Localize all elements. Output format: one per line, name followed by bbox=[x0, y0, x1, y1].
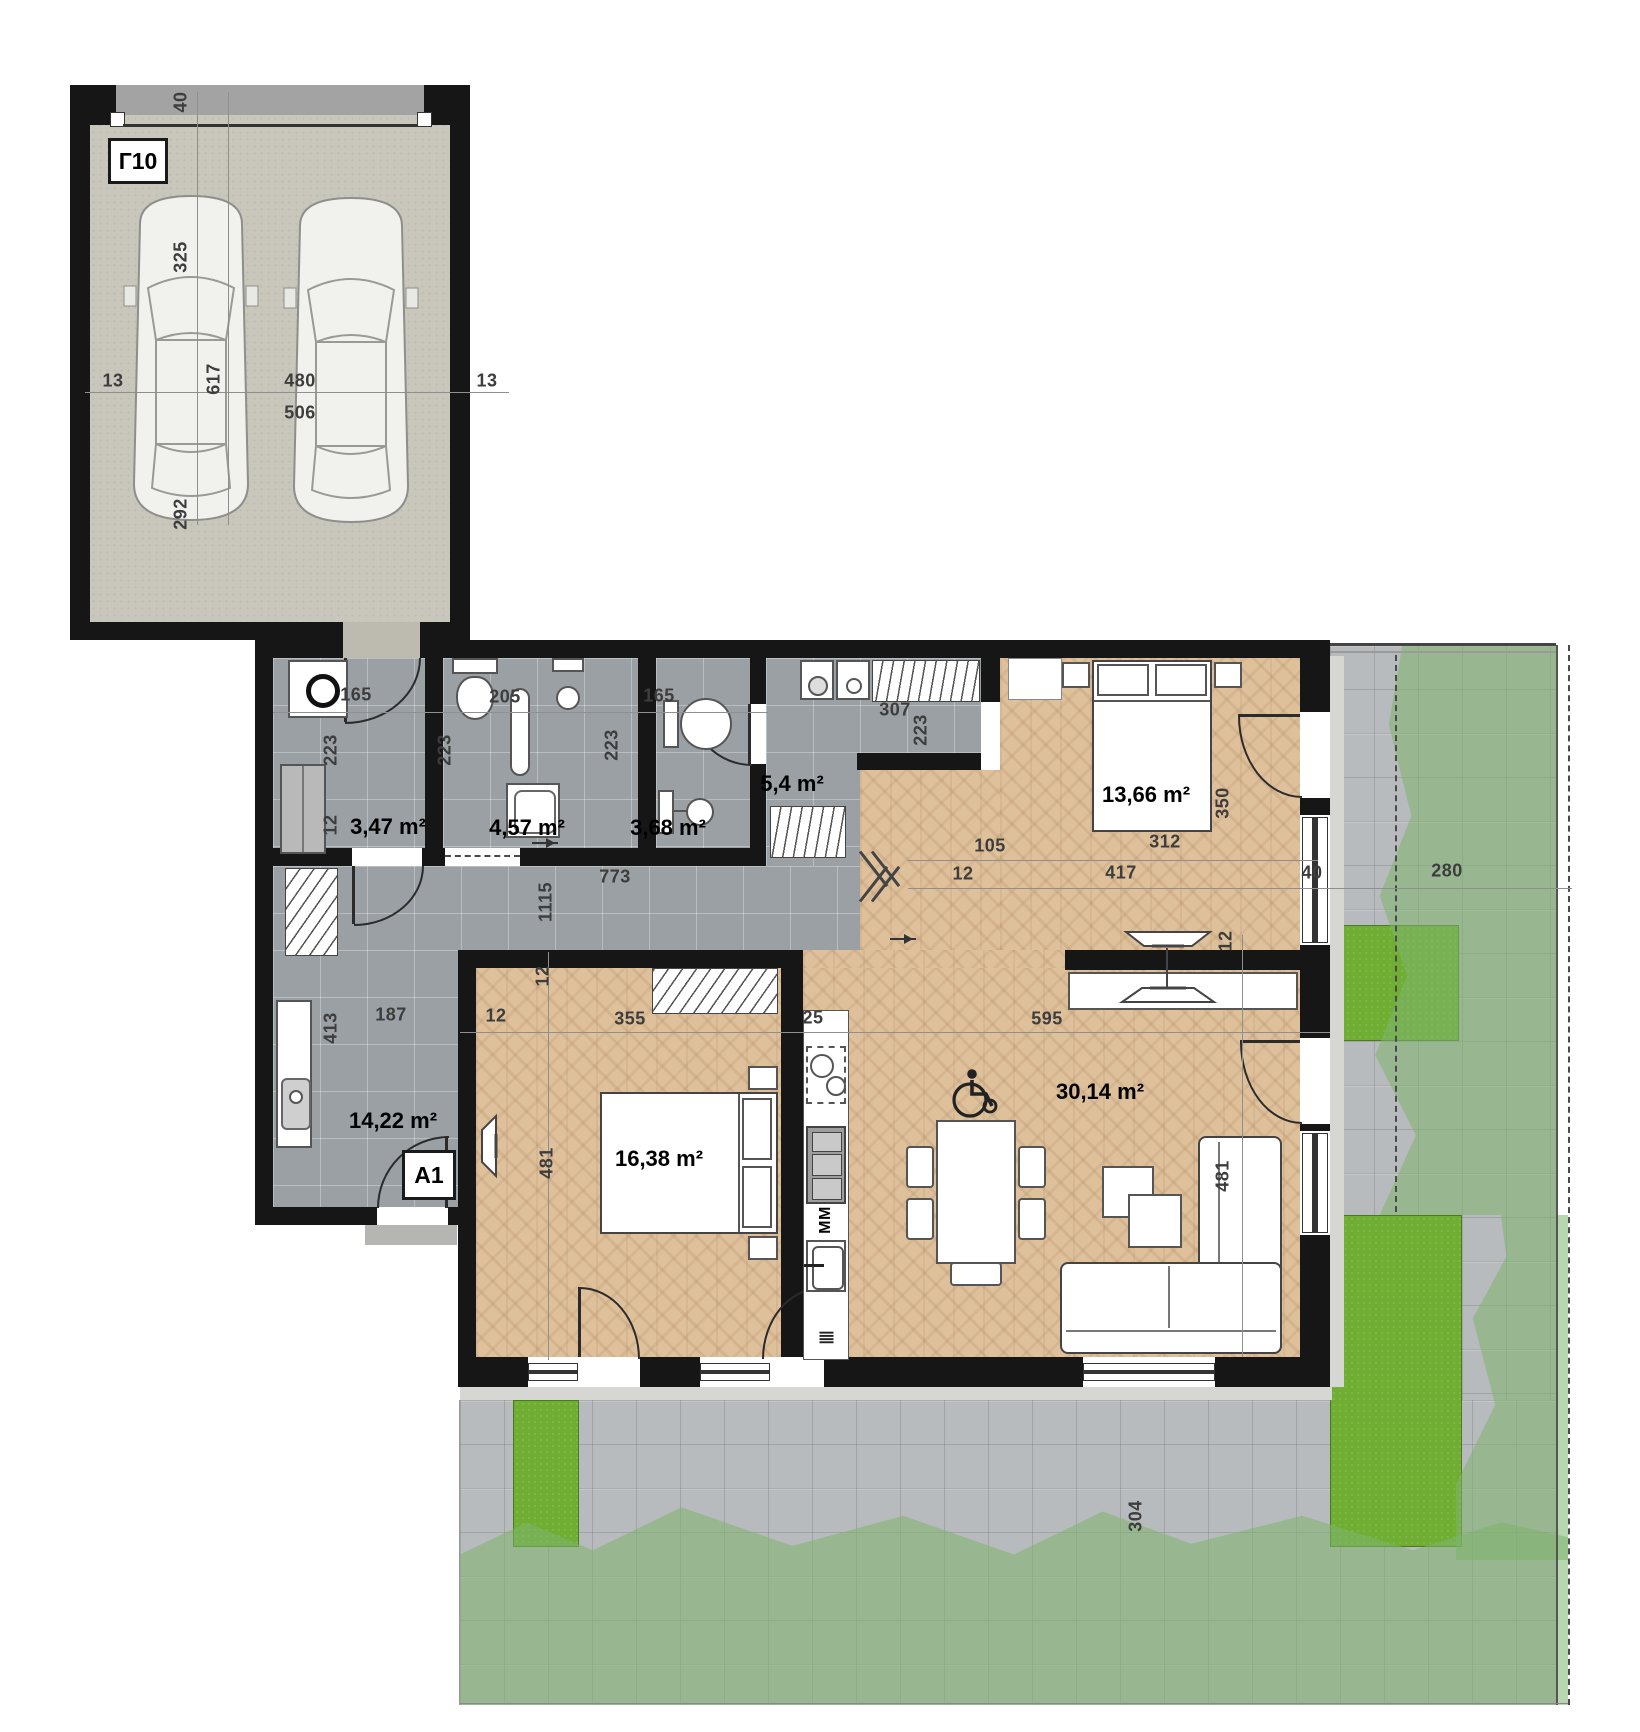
dimension-label: 165 bbox=[643, 686, 675, 707]
terrace-dashed-line bbox=[1395, 655, 1397, 1212]
tv-stand-line bbox=[1166, 948, 1168, 988]
kitchen-sink-bowl-icon bbox=[812, 1246, 844, 1290]
dimension-label: 223 bbox=[435, 734, 456, 766]
dimension-label: 12 bbox=[321, 814, 342, 835]
dimension-label: 292 bbox=[171, 498, 192, 530]
toilet-icon bbox=[452, 658, 498, 674]
niche bbox=[1008, 658, 1062, 700]
tv-icon bbox=[478, 1112, 500, 1180]
wall bbox=[981, 640, 1000, 702]
faucet-dot-icon bbox=[289, 1090, 303, 1104]
door-opening bbox=[343, 622, 420, 658]
dimension-label: 40 bbox=[171, 91, 192, 112]
tv-icon bbox=[1122, 930, 1214, 950]
chair-icon bbox=[906, 1146, 934, 1188]
garage-unit-label: Г10 bbox=[108, 138, 168, 184]
oven-door-icon bbox=[812, 1132, 842, 1152]
dimension-label: 417 bbox=[1105, 863, 1137, 884]
nightstand-icon bbox=[748, 1066, 778, 1090]
door-leaf bbox=[1240, 1040, 1300, 1043]
coffee-table-icon bbox=[1128, 1194, 1182, 1248]
garage-door-lintel bbox=[110, 85, 430, 115]
pillow-icon bbox=[742, 1166, 772, 1228]
dimension-label: 205 bbox=[489, 687, 521, 708]
wall bbox=[255, 640, 273, 1225]
dimension-label: 481 bbox=[1213, 1160, 1234, 1192]
area-label-closet: 5,4 m² bbox=[760, 771, 824, 797]
dimension-label: 595 bbox=[1031, 1009, 1063, 1030]
dimension-label: 12 bbox=[533, 965, 554, 986]
arrow-icon bbox=[532, 842, 558, 844]
garden-boundary bbox=[460, 1703, 1568, 1704]
dimension-label: 187 bbox=[375, 1005, 407, 1026]
dimension-line bbox=[85, 392, 509, 393]
chair-icon bbox=[1018, 1146, 1046, 1188]
blanket-line bbox=[1094, 700, 1210, 702]
area-label-laundry: 3,47 m² bbox=[350, 814, 426, 840]
dimension-label: 413 bbox=[321, 1012, 342, 1044]
area-label-bedroom-large: 16,38 m² bbox=[615, 1146, 703, 1172]
window bbox=[700, 1363, 770, 1381]
property-line bbox=[1556, 645, 1558, 1705]
window-sill bbox=[460, 1387, 1332, 1400]
garage-unit-text: Г10 bbox=[119, 148, 158, 175]
dimension-label: 325 bbox=[171, 241, 192, 273]
wall bbox=[70, 85, 90, 640]
pillow-icon bbox=[1155, 664, 1207, 696]
washer-dryer-door-icon bbox=[846, 678, 862, 694]
terrace-edge bbox=[1330, 651, 1556, 653]
dimension-line bbox=[228, 92, 229, 525]
pillow-icon bbox=[1097, 664, 1149, 696]
faucet-line bbox=[674, 810, 688, 812]
nightstand-icon bbox=[1214, 662, 1242, 688]
terrace-edge bbox=[1330, 643, 1556, 646]
wall bbox=[450, 85, 470, 640]
sofa-icon bbox=[1060, 1262, 1282, 1354]
window bbox=[1083, 1363, 1215, 1381]
wardrobe-icon bbox=[872, 660, 980, 702]
wall bbox=[1065, 950, 1300, 970]
shower-head-icon bbox=[556, 686, 580, 710]
dimension-label: 165 bbox=[340, 685, 372, 706]
dimension-label: 13 bbox=[102, 371, 123, 392]
dimension-line bbox=[460, 1032, 1330, 1033]
area-label-living: 30,14 m² bbox=[1056, 1079, 1144, 1105]
nightstand-icon bbox=[748, 1236, 778, 1260]
dimension-label: 617 bbox=[204, 363, 225, 395]
sofa-seat-line bbox=[1066, 1330, 1276, 1332]
chair-icon bbox=[906, 1198, 934, 1240]
shower-mixer-icon bbox=[552, 658, 584, 672]
dimension-label: 12 bbox=[952, 864, 973, 885]
wall bbox=[255, 1207, 377, 1225]
wall bbox=[458, 950, 803, 968]
window bbox=[1302, 1133, 1328, 1233]
grass-patch bbox=[1330, 1215, 1462, 1547]
wardrobe-icon bbox=[285, 868, 338, 956]
dimension-label: 773 bbox=[599, 867, 631, 888]
dimension-label: 13 bbox=[476, 371, 497, 392]
door-opening bbox=[1300, 1038, 1330, 1124]
car-icon bbox=[278, 188, 424, 532]
wheelchair-icon bbox=[948, 1066, 1004, 1122]
dimension-label: 312 bbox=[1149, 832, 1181, 853]
washer-dryer-door-icon bbox=[808, 676, 828, 696]
dimension-line bbox=[908, 860, 1318, 861]
dimension-label: 12 bbox=[1216, 930, 1237, 951]
dimension-label: 280 bbox=[1431, 861, 1463, 882]
blanket-line bbox=[738, 1094, 740, 1232]
door-leaf bbox=[748, 704, 751, 764]
sliding-door-icon bbox=[445, 855, 520, 857]
area-label-bathroom: 4,57 m² bbox=[489, 815, 565, 841]
toilet-icon bbox=[663, 700, 679, 748]
wall bbox=[422, 848, 445, 866]
faucet-line bbox=[804, 1264, 824, 1267]
garage-door-line bbox=[123, 124, 417, 127]
property-line-ticks bbox=[1568, 645, 1570, 1705]
apartment-unit-text: A1 bbox=[414, 1162, 443, 1189]
dimension-label: 223 bbox=[602, 729, 623, 761]
garage-door-jamb bbox=[417, 112, 432, 127]
cooktop-burner-icon bbox=[826, 1076, 846, 1096]
door-leaf bbox=[352, 866, 355, 924]
oven-door-icon bbox=[812, 1178, 842, 1200]
dimension-label: 350 bbox=[1213, 787, 1234, 819]
area-label-wc: 3,68 m² bbox=[630, 815, 706, 841]
wall bbox=[458, 950, 476, 1387]
hall-sink-icon bbox=[281, 1078, 311, 1130]
pillow-icon bbox=[742, 1098, 772, 1160]
dimension-label: 480 bbox=[284, 371, 316, 392]
chair-icon bbox=[950, 1262, 1002, 1286]
car-icon bbox=[118, 188, 264, 528]
door-leaf bbox=[1238, 714, 1300, 717]
window bbox=[528, 1363, 578, 1381]
area-label-bedroom-small: 13,66 m² bbox=[1102, 782, 1190, 808]
area-label-hallway: 14,22 m² bbox=[349, 1108, 437, 1134]
toilet-icon bbox=[680, 698, 732, 750]
dimension-label: 506 bbox=[284, 403, 316, 424]
dimension-line bbox=[197, 92, 198, 525]
sofa-cushion-line bbox=[1168, 1266, 1170, 1328]
entry-threshold bbox=[365, 1225, 457, 1245]
dimension-line bbox=[908, 888, 1572, 889]
wardrobe-icon bbox=[652, 968, 778, 1014]
door-opening bbox=[578, 1357, 640, 1387]
room-living-floor bbox=[803, 950, 1065, 968]
dimension-label: 307 bbox=[879, 700, 911, 721]
wall bbox=[520, 848, 766, 866]
dimension-label: 1115 bbox=[536, 882, 557, 922]
dimension-label: 355 bbox=[614, 1009, 646, 1030]
dimension-label: 223 bbox=[911, 714, 932, 746]
dimension-label: 304 bbox=[1126, 1500, 1147, 1532]
arrow-icon bbox=[890, 938, 916, 940]
dimension-label: 25 bbox=[802, 1008, 823, 1029]
door-opening bbox=[770, 1357, 824, 1387]
dishwasher-icon: |||| bbox=[818, 1332, 835, 1345]
door-leaf bbox=[578, 1287, 581, 1357]
window-sill bbox=[1330, 656, 1344, 1387]
floor-plan: Г10 40 325 617 13 480 506 13 292 bbox=[0, 0, 1640, 1732]
cabinet-line bbox=[302, 766, 304, 852]
dimension-label: 40 bbox=[1301, 863, 1322, 884]
cooktop-burner-icon bbox=[810, 1054, 834, 1078]
wardrobe-icon bbox=[770, 806, 846, 858]
microwave-label: MM bbox=[817, 1206, 835, 1234]
dimension-label: 12 bbox=[485, 1006, 506, 1027]
chair-icon bbox=[1018, 1198, 1046, 1240]
apartment-unit-label: A1 bbox=[402, 1150, 456, 1200]
dining-table-icon bbox=[936, 1120, 1016, 1264]
tv-icon bbox=[1118, 984, 1218, 1006]
dimension-line bbox=[273, 712, 768, 713]
wall bbox=[750, 658, 766, 704]
dimension-line bbox=[1242, 935, 1243, 1357]
wall bbox=[857, 753, 981, 770]
nightstand-icon bbox=[1062, 662, 1090, 688]
washing-machine-door-icon bbox=[306, 674, 340, 708]
dimension-label: 223 bbox=[321, 734, 342, 766]
door-opening bbox=[1300, 712, 1330, 798]
dimension-label: 481 bbox=[537, 1147, 558, 1179]
oven-door-icon bbox=[812, 1154, 842, 1176]
terrace-edge bbox=[459, 1400, 460, 1705]
dimension-label: 105 bbox=[974, 836, 1006, 857]
